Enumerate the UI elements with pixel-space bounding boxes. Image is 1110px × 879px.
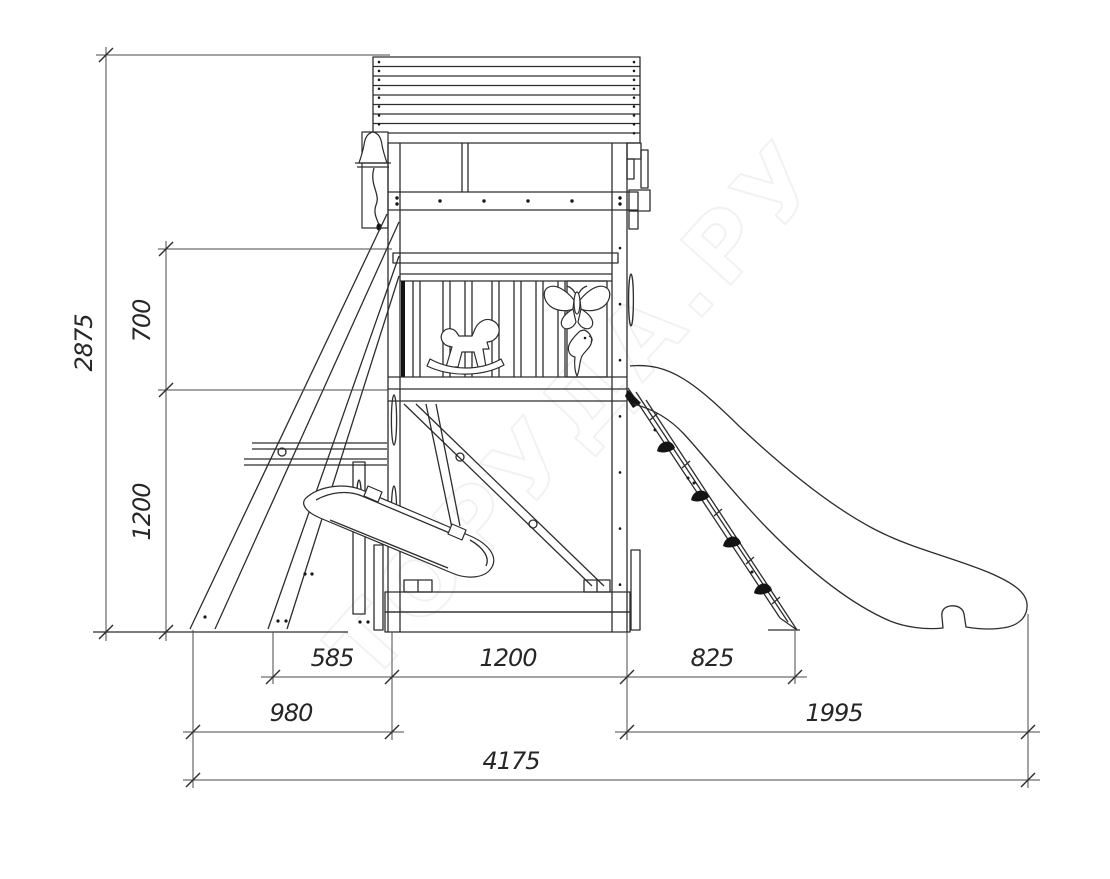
- climbing-ramp: [625, 388, 800, 630]
- dim-label-700: 700: [128, 299, 156, 343]
- gable-band: [462, 143, 648, 192]
- roof: [373, 57, 640, 143]
- dim-label-1995: 1995: [805, 699, 862, 727]
- playground-elevation-drawing: ТОРУДА.РУ: [0, 0, 1110, 879]
- dim-row-total: 4175: [183, 747, 1040, 787]
- slide-end-cap: [890, 604, 1027, 629]
- dim-row-footprint: 980 1995: [183, 699, 1040, 739]
- slide-top-edge: [630, 366, 1027, 604]
- dim-total-height: 2875: [70, 47, 113, 641]
- dim-label-4175: 4175: [482, 747, 539, 775]
- post-slot: [391, 395, 396, 445]
- blueprint-sheet: ТОРУДА.РУ: [0, 0, 1110, 879]
- dim-sections: 700 1200: [128, 241, 173, 641]
- dim-label-1200v: 1200: [128, 483, 156, 541]
- dim-label-585: 585: [311, 644, 354, 672]
- slide: [630, 366, 1027, 629]
- dim-label-980: 980: [270, 699, 314, 727]
- dim-row-spans: 585 1200 825: [261, 644, 807, 684]
- dim-label-2875: 2875: [70, 314, 98, 371]
- dim-label-1200h: 1200: [479, 644, 537, 672]
- header-beam: [380, 190, 650, 229]
- climb-hold: [657, 442, 675, 453]
- dim-label-825: 825: [691, 644, 734, 672]
